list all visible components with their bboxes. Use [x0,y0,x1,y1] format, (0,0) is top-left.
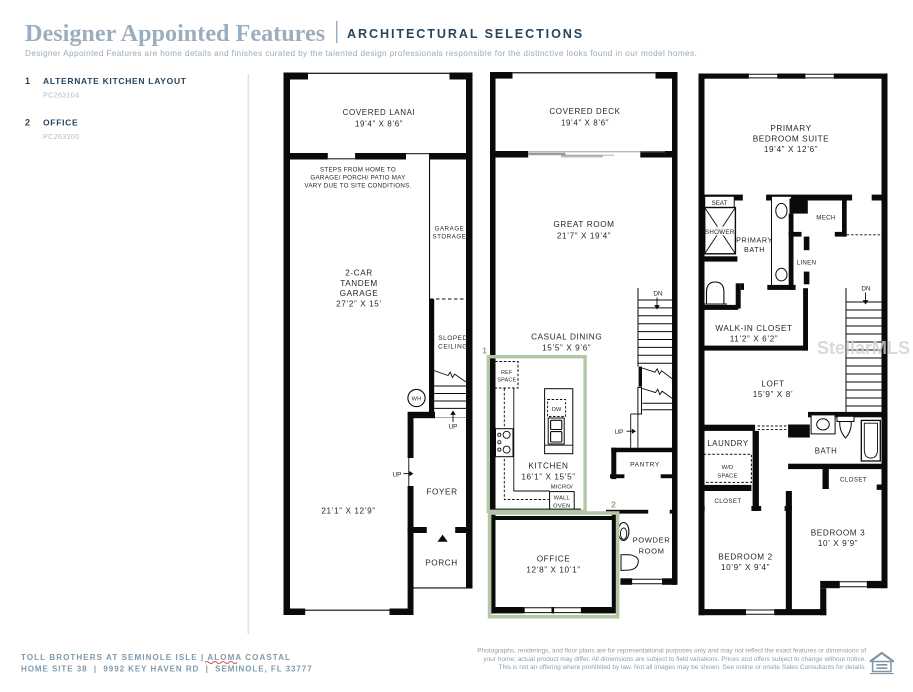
svg-text:REF: REF [501,370,513,376]
svg-text:12’8” X 10’1”: 12’8” X 10’1” [526,566,580,575]
svg-text:2: 2 [25,118,30,128]
svg-text:2-CAR: 2-CAR [345,269,373,278]
svg-text:16’1” X 15’5”: 16’1” X 15’5” [521,473,575,482]
svg-text:19’4” X 12’6”: 19’4” X 12’6” [764,145,818,154]
svg-text:BEDROOM SUITE: BEDROOM SUITE [753,135,830,144]
svg-text:ARCHITECTURAL SELECTIONS: ARCHITECTURAL SELECTIONS [347,27,584,41]
svg-text:ROOM: ROOM [638,547,664,556]
svg-text:GARAGE/ PORCH/ PATIO MAY: GARAGE/ PORCH/ PATIO MAY [310,175,405,182]
svg-text:WALK-IN CLOSET: WALK-IN CLOSET [715,324,792,333]
svg-text:2: 2 [611,500,616,510]
svg-text:GARAGE: GARAGE [340,289,379,298]
svg-text:CASUAL DINING: CASUAL DINING [531,333,602,342]
svg-text:PC263300: PC263300 [43,132,79,141]
svg-text:UP: UP [615,429,624,436]
svg-text:CLOSET: CLOSET [840,477,867,484]
svg-text:19’4” X 8’6”: 19’4” X 8’6” [355,120,403,129]
svg-text:Photographs, renderings, and f: Photographs, renderings, and floor plans… [477,648,866,655]
svg-text:SEAT: SEAT [712,200,728,207]
svg-text:PORCH: PORCH [425,559,458,568]
svg-text:VARY DUE TO SITE CONDITIONS.: VARY DUE TO SITE CONDITIONS. [304,183,411,190]
svg-text:LAUNDRY: LAUNDRY [707,439,749,448]
svg-text:StellarMLS: StellarMLS [817,338,910,358]
svg-text:WALL: WALL [554,496,571,502]
svg-text:STORAGE: STORAGE [433,234,467,241]
svg-text:1: 1 [482,346,487,356]
svg-text:21’1” X 12’9”: 21’1” X 12’9” [321,507,375,516]
svg-text:DN: DN [653,291,663,298]
svg-text:21’7” X 19’4”: 21’7” X 19’4” [557,231,611,240]
svg-text:W/D: W/D [722,465,734,471]
svg-text:11’2” X 6’2”: 11’2” X 6’2” [730,335,778,344]
svg-text:SHOWER: SHOWER [705,229,735,236]
svg-text:KITCHEN: KITCHEN [528,462,568,471]
svg-text:GARAGE: GARAGE [435,226,465,233]
svg-text:OFFICE: OFFICE [537,555,571,564]
svg-text:10’ X 9’9”: 10’ X 9’9” [818,539,858,548]
svg-text:This is not an offering where: This is not an offering where prohibited… [499,664,867,671]
svg-text:UP: UP [449,424,458,431]
svg-text:CEILING: CEILING [438,344,468,351]
svg-text:PRIMARY: PRIMARY [736,236,773,245]
svg-text:LINEN: LINEN [797,260,817,267]
svg-text:TANDEM: TANDEM [340,279,378,288]
svg-text:HOME SITE 38 | 9992 KEY HAVE: HOME SITE 38 | 9992 KEY HAVEN RD | SEMIN… [21,665,313,674]
svg-text:your home; actual product may: your home; actual product may differ. Al… [483,656,866,663]
svg-text:10’9” X 9’4”: 10’9” X 9’4” [721,563,770,572]
svg-text:PANTRY: PANTRY [630,462,660,469]
svg-text:15’9” X 8’: 15’9” X 8’ [753,390,794,399]
svg-text:GREAT ROOM: GREAT ROOM [553,220,614,229]
svg-text:Designer Appointed Features: Designer Appointed Features [25,20,325,47]
svg-text:PRIMARY: PRIMARY [770,124,811,133]
svg-text:BATH: BATH [815,447,838,456]
svg-text:TOLL BROTHERS AT SEMINOLE ISLE: TOLL BROTHERS AT SEMINOLE ISLE | ALOMA C… [21,653,291,662]
svg-text:27’2” X 15’: 27’2” X 15’ [336,299,382,308]
svg-text:SPACE: SPACE [717,474,737,480]
svg-text:15’5” X 9’6”: 15’5” X 9’6” [542,343,591,352]
svg-text:BEDROOM 2: BEDROOM 2 [718,553,773,562]
svg-text:COVERED DECK: COVERED DECK [549,107,620,116]
svg-text:ALTERNATE KITCHEN LAYOUT: ALTERNATE KITCHEN LAYOUT [43,76,187,86]
svg-text:COVERED LANAI: COVERED LANAI [343,108,416,117]
svg-text:MICRO/: MICRO/ [551,485,573,491]
svg-text:WH: WH [412,396,422,402]
svg-text:19’4” X 8’6”: 19’4” X 8’6” [561,119,609,128]
svg-text:OFFICE: OFFICE [43,118,78,128]
svg-text:MECH: MECH [816,214,835,221]
svg-text:BATH: BATH [744,245,765,254]
svg-text:CLOSET: CLOSET [714,498,741,505]
svg-text:DW: DW [552,407,562,413]
svg-text:PC263104: PC263104 [43,91,79,100]
svg-text:LOFT: LOFT [761,380,784,389]
svg-text:UP: UP [393,472,402,479]
svg-text:DN: DN [861,286,871,293]
svg-text:POWDER: POWDER [633,536,671,545]
svg-text:STEPS FROM HOME TO: STEPS FROM HOME TO [320,167,396,174]
svg-text:SLOPED: SLOPED [438,335,468,342]
svg-text:BEDROOM 3: BEDROOM 3 [811,529,866,538]
svg-text:1: 1 [25,76,30,86]
svg-text:FOYER: FOYER [426,488,457,497]
svg-text:Designer Appointed Features ar: Designer Appointed Features are home det… [25,49,697,58]
svg-text:SPACE: SPACE [497,378,516,384]
